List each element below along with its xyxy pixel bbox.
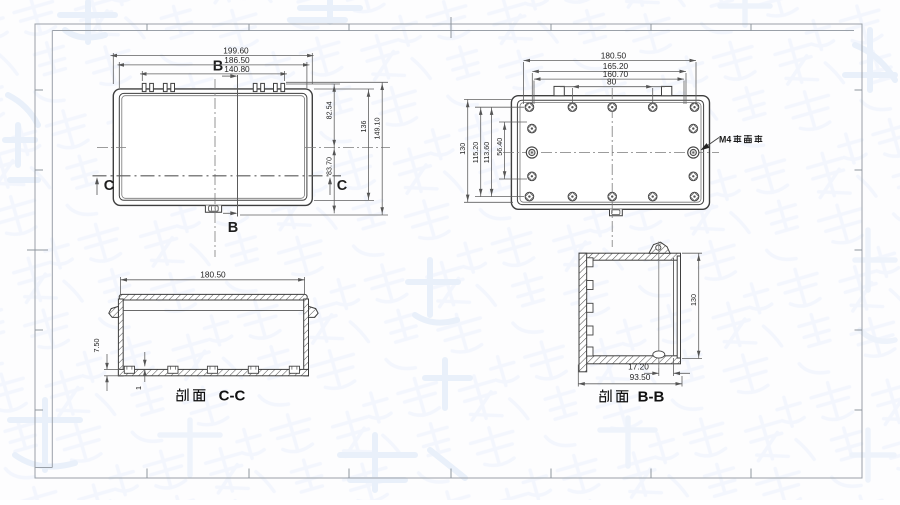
svg-text:M4: M4: [719, 135, 731, 145]
svg-text:56.40: 56.40: [495, 138, 504, 156]
svg-text:82.54: 82.54: [325, 101, 334, 119]
svg-text:149.10: 149.10: [373, 118, 382, 140]
svg-text:C: C: [104, 178, 115, 194]
svg-text:1: 1: [134, 386, 143, 390]
svg-text:C-C: C-C: [219, 388, 246, 405]
svg-text:136: 136: [359, 121, 368, 133]
svg-text:130: 130: [689, 294, 698, 306]
svg-text:83.70: 83.70: [325, 157, 334, 175]
svg-text:180.50: 180.50: [200, 270, 226, 280]
svg-text:199.60: 199.60: [223, 45, 249, 55]
svg-text:180.50: 180.50: [601, 50, 627, 60]
svg-text:17.20: 17.20: [628, 362, 649, 372]
svg-text:7.50: 7.50: [92, 339, 101, 353]
svg-text:130: 130: [458, 143, 467, 155]
svg-text:B: B: [213, 59, 223, 75]
svg-text:140.80: 140.80: [224, 64, 250, 74]
svg-text:93.50: 93.50: [630, 372, 651, 382]
svg-text:113.60: 113.60: [482, 142, 491, 163]
svg-text:115.20: 115.20: [471, 142, 480, 163]
svg-text:B-B: B-B: [638, 389, 665, 406]
svg-text:B: B: [228, 220, 238, 236]
svg-text:C: C: [337, 178, 348, 194]
svg-text:80: 80: [607, 77, 617, 87]
